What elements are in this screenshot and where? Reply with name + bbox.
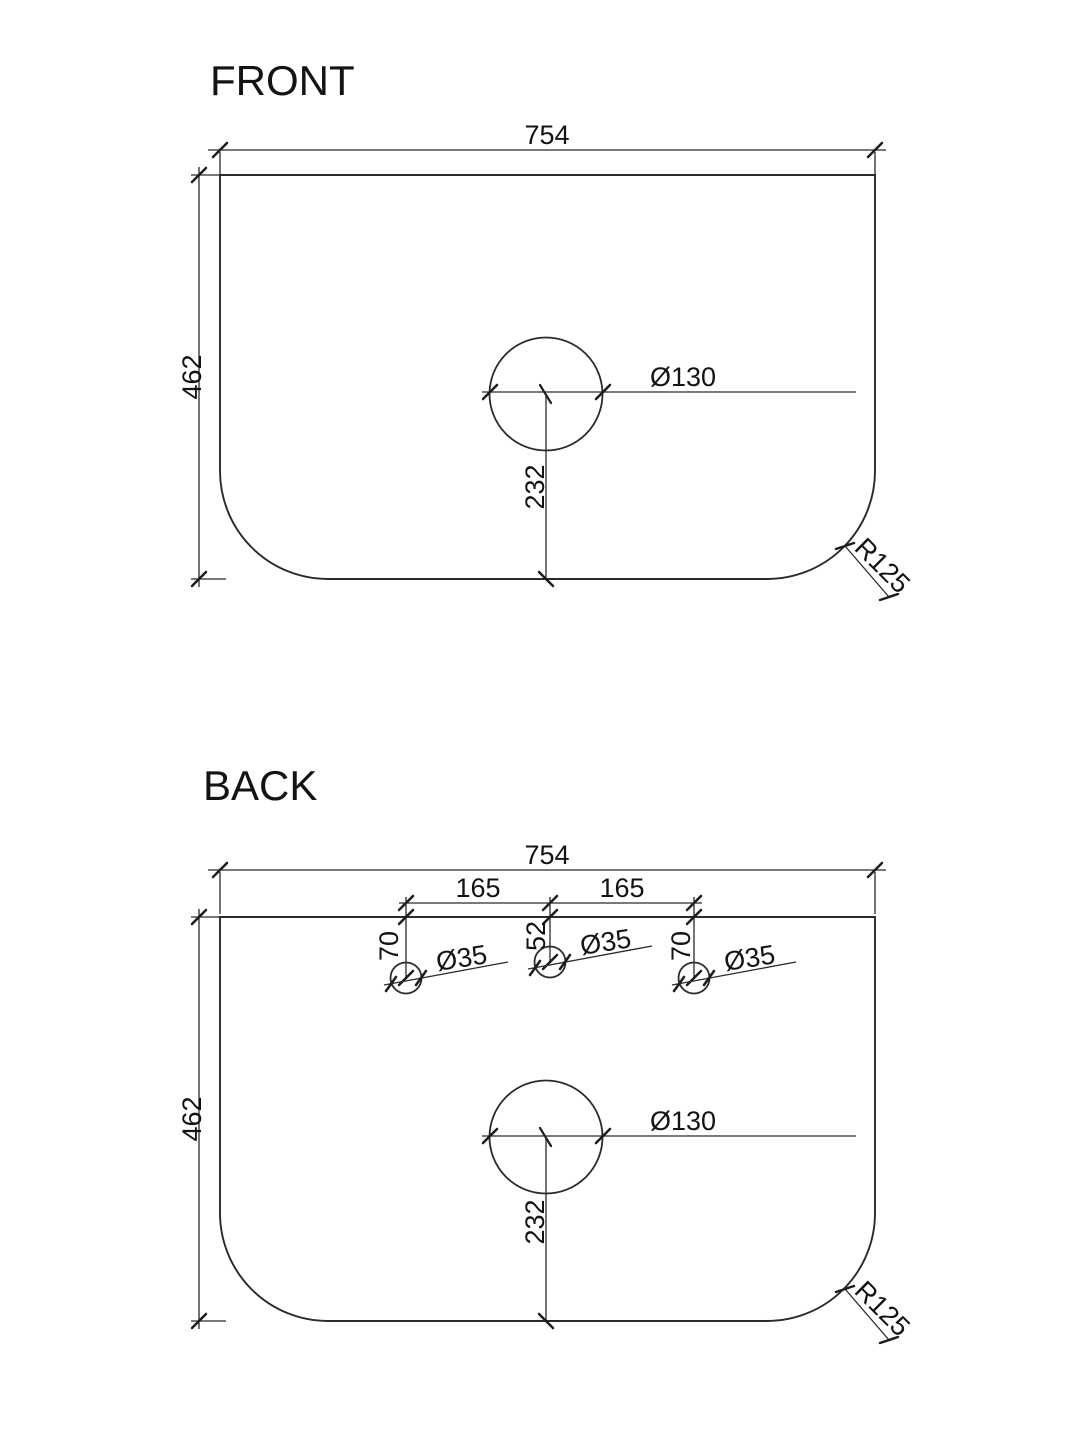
back-view-title: BACK <box>203 762 317 809</box>
back-basin-diameter-label: Ø130 <box>650 1106 716 1136</box>
back-tap-offset-left-label: 70 <box>374 931 404 961</box>
front-width-label: 754 <box>524 120 569 150</box>
back-tap-spacing-left-label: 165 <box>455 873 500 903</box>
back-tap-hole-center: 52 Ø35 <box>521 897 652 978</box>
back-tap-spacing-right-label: 165 <box>599 873 644 903</box>
front-basin-diameter-dimension: Ø130 <box>482 362 856 399</box>
back-tap-offset-right-label: 70 <box>666 931 696 961</box>
back-view: BACK 754 165 165 462 <box>177 762 916 1343</box>
front-basin-offset-label: 232 <box>520 464 550 509</box>
front-view: FRONT 754 462 Ø130 <box>177 57 916 600</box>
back-basin-diameter-dimension: Ø130 <box>482 1106 856 1143</box>
drawing-page: FRONT 754 462 Ø130 <box>0 0 1068 1450</box>
back-tap-diameter-center-label: Ø35 <box>578 923 633 961</box>
back-height-dimension: 462 <box>177 909 226 1329</box>
front-countertop-outline <box>220 175 875 579</box>
front-basin-diameter-label: Ø130 <box>650 362 716 392</box>
technical-drawing: FRONT 754 462 Ø130 <box>0 0 1068 1450</box>
back-basin-offset-label: 232 <box>520 1199 550 1244</box>
back-tap-hole-left: 70 Ø35 <box>374 897 508 994</box>
front-height-label: 462 <box>177 354 207 399</box>
front-height-dimension: 462 <box>177 167 226 587</box>
back-tap-diameter-right-label: Ø35 <box>722 939 777 977</box>
back-tap-hole-right: 70 Ø35 <box>666 897 796 994</box>
back-basin-offset-dimension: 232 <box>520 1137 553 1328</box>
back-tap-diameter-left-label: Ø35 <box>434 939 489 977</box>
back-height-label: 462 <box>177 1096 207 1141</box>
back-width-label: 754 <box>524 840 569 870</box>
front-basin-offset-dimension: 232 <box>520 394 553 586</box>
front-view-title: FRONT <box>210 57 355 104</box>
front-width-dimension: 754 <box>208 120 886 174</box>
